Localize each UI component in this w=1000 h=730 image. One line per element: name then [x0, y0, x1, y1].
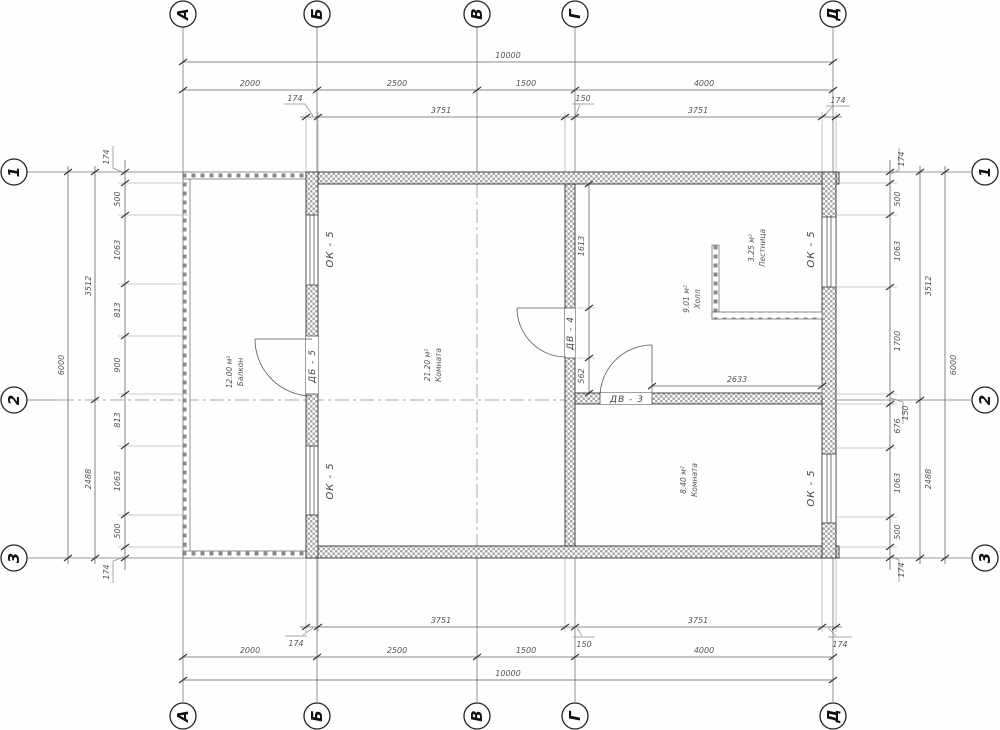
dim-label: 562 — [577, 368, 586, 383]
dim-label: 676 — [893, 418, 902, 433]
balcony-door-swing — [255, 339, 312, 396]
dim-label: 174 — [832, 640, 847, 649]
dim-label: 6000 — [949, 355, 958, 375]
axis-label-col: А — [174, 8, 192, 21]
dim-label: 1063 — [113, 471, 122, 491]
dim-label: 3751 — [431, 616, 451, 625]
dim-label: 174 — [897, 562, 906, 577]
dim-label: 1700 — [893, 331, 902, 351]
axis-label-row: 1 — [976, 167, 994, 177]
dim-label: 2500 — [387, 646, 407, 655]
window-right-bottom — [822, 454, 836, 523]
room-name: Холл — [693, 289, 702, 310]
room-door-tag: ДВ - 3 — [609, 395, 644, 405]
dim-label: 1500 — [516, 646, 536, 655]
axis-bubbles: А Б В Г Д А Б В Г Д 1 2 3 1 2 3 — [1, 1, 998, 729]
dim-label: 500 — [893, 191, 902, 206]
wall-middle-vertical — [565, 184, 575, 546]
dim-label: 2000 — [240, 646, 260, 655]
dim-label: 2633 — [727, 375, 747, 384]
dim-label: 3751 — [431, 106, 451, 115]
dim-label: 2500 — [387, 79, 407, 88]
dimensions-inner: 1613 562 2633 — [577, 236, 747, 384]
dim-label: 3512 — [924, 276, 933, 296]
axis-label-col: Г — [566, 8, 584, 19]
dim-label: 500 — [893, 524, 902, 539]
window-left-top — [306, 215, 318, 285]
hall-door-tag: ДВ - 4 — [566, 316, 576, 351]
dim-label: 10000 — [495, 669, 520, 678]
dim-label: 3751 — [688, 616, 708, 625]
dim-label: 1613 — [577, 236, 586, 256]
dim-label: 500 — [113, 523, 122, 538]
dimensions-left: 6000 3512 2488 174 500 1063 813 900 813 … — [57, 149, 122, 579]
axis-label-row: 1 — [5, 167, 23, 177]
dim-label: 2488 — [84, 469, 93, 489]
axis-label-col: В — [468, 710, 486, 721]
room-name: Комната — [690, 463, 699, 497]
dim-label: 2000 — [240, 79, 260, 88]
dim-label: 174 — [288, 639, 303, 648]
window-left-bottom — [306, 446, 318, 515]
dim-label: 174 — [830, 96, 845, 105]
dimension-lines — [68, 62, 945, 680]
hall-door-swing — [517, 308, 566, 357]
room-name: Балкон — [236, 358, 245, 387]
dim-label: 4000 — [694, 646, 714, 655]
room-door-swing — [600, 345, 652, 397]
axis-label-row: 2 — [5, 395, 23, 405]
window-tag: ОК - 5 — [325, 230, 336, 267]
room-area: 9.01 м² — [682, 285, 691, 313]
dim-label: 1063 — [893, 473, 902, 493]
dim-label: 500 — [113, 191, 122, 206]
room-area: 3.25 м² — [747, 234, 756, 262]
axis-label-row: 3 — [5, 553, 23, 563]
dim-label: 174 — [287, 94, 302, 103]
floor-plan-sheet: А Б В Г Д А Б В Г Д 1 2 3 1 2 3 10000 20… — [0, 0, 1000, 730]
window-tag: ОК - 5 — [806, 469, 817, 506]
axis-label-col: Б — [308, 8, 326, 19]
dim-label: 150 — [575, 94, 590, 103]
dim-label: 900 — [113, 357, 122, 372]
axis-label-col: Б — [308, 710, 326, 721]
dim-label: 174 — [897, 151, 906, 166]
dim-label: 10000 — [495, 51, 520, 60]
room-name: Комната — [434, 348, 443, 382]
dimensions-bottom: 3751 3751 174 150 174 2000 2500 1500 400… — [240, 616, 848, 678]
axis-label-col: Д — [824, 7, 842, 21]
dim-label: 174 — [102, 149, 111, 164]
dimensions-right: 6000 3512 2488 174 500 1063 1700 150 676… — [893, 151, 958, 577]
room-area: 8.40 м² — [679, 466, 688, 494]
opening-tags: ОК - 5 ОК - 5 ОК - 5 ОК - 5 ДБ - 5 ДВ - … — [308, 230, 817, 506]
wall-bottom — [306, 546, 839, 558]
balcony-door-tag: ДБ - 5 — [308, 349, 318, 384]
axis-label-col: В — [468, 8, 486, 19]
dimension-ticks — [64, 59, 949, 683]
dim-label: 174 — [102, 564, 111, 579]
dim-label: 813 — [113, 412, 122, 427]
floor-plan-drawing: А Б В Г Д А Б В Г Д 1 2 3 1 2 3 10000 20… — [0, 0, 1000, 730]
axis-label-row: 2 — [976, 395, 994, 405]
axis-label-row: 3 — [976, 553, 994, 563]
window-tag: ОК - 5 — [806, 230, 817, 267]
dim-label: 3751 — [688, 106, 708, 115]
room-name: Лестница — [758, 228, 767, 268]
dim-label: 150 — [576, 640, 591, 649]
dim-label: 813 — [113, 302, 122, 317]
room-area: 12.00 м² — [225, 356, 234, 389]
window-tag: ОК - 5 — [325, 462, 336, 499]
dim-label: 1500 — [516, 79, 536, 88]
dim-label: 1063 — [113, 240, 122, 260]
dim-label: 1063 — [893, 241, 902, 261]
dim-label: 6000 — [57, 355, 66, 375]
room-area: 21.20 м² — [423, 349, 432, 382]
axis-label-col: Г — [566, 710, 584, 721]
axis-label-col: Д — [824, 709, 842, 723]
dim-label: 150 — [901, 405, 910, 420]
dim-label: 4000 — [694, 79, 714, 88]
dim-label: 3512 — [84, 276, 93, 296]
axis-label-col: А — [174, 710, 192, 723]
window-right-top — [822, 217, 836, 287]
wall-top — [306, 172, 839, 184]
dimensions-top: 10000 2000 2500 1500 4000 174 3751 150 3… — [240, 51, 846, 115]
dim-label: 2488 — [924, 469, 933, 489]
